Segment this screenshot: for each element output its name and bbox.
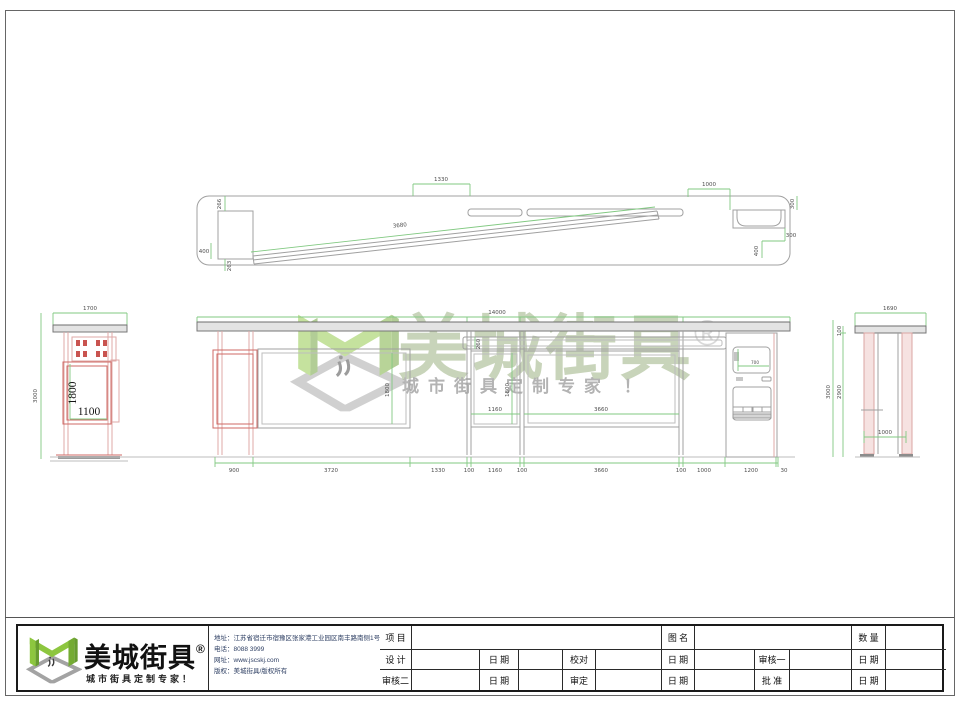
verify-value-cell [596, 670, 662, 690]
label-date: 日 期 [480, 650, 519, 670]
title-block: 美城街具® 城市街具定制专家！ 地址：江苏省宿迁市宿豫区张家港工业园区南丰路南侧… [16, 624, 944, 692]
label-approve: 批 准 [755, 670, 790, 690]
company-brand: 美城街具® [84, 636, 206, 675]
approval-table: 项 目 图 名 数 量 设 计 日 期 校对 日 期 审核一 日 期 审核二 日… [380, 626, 946, 690]
label-verify: 审定 [563, 670, 596, 690]
company-address: 地址：江苏省宿迁市宿豫区张家港工业园区南丰路南侧1号 [214, 633, 376, 644]
label-review2: 审核二 [380, 670, 412, 690]
date-value-cell [886, 670, 946, 690]
label-proofread: 校对 [563, 650, 596, 670]
quantity-value-cell [886, 626, 946, 650]
review1-value-cell [790, 650, 852, 670]
label-date: 日 期 [662, 670, 695, 690]
proofread-value-cell [596, 650, 662, 670]
project-value-cell [412, 626, 662, 650]
label-review1: 审核一 [755, 650, 790, 670]
company-phone: 电话：8088 3999 [214, 644, 376, 655]
label-quantity: 数 量 [852, 626, 886, 650]
company-m-logo-icon [24, 629, 82, 687]
company-tagline: 城市街具定制专家！ [86, 672, 194, 685]
sheet-border [5, 10, 955, 696]
registered-mark: ® [196, 642, 206, 656]
review2-value-cell [412, 670, 480, 690]
date-value-cell [886, 650, 946, 670]
drawing-sheet: 美城街具® 城市街具定制专家 ！ 1330 [0, 0, 960, 704]
date-value-cell [695, 670, 755, 690]
approve-value-cell [790, 670, 852, 690]
titleblock-top-rule [5, 617, 954, 618]
label-date: 日 期 [480, 670, 519, 690]
label-project: 项 目 [380, 626, 412, 650]
label-date: 日 期 [852, 670, 886, 690]
label-date: 日 期 [662, 650, 695, 670]
date-value-cell [519, 670, 563, 690]
label-design: 设 计 [380, 650, 412, 670]
label-drawing-name: 图 名 [662, 626, 695, 650]
drawing-name-value-cell [695, 626, 852, 650]
company-info: 地址：江苏省宿迁市宿豫区张家港工业园区南丰路南侧1号 电话：8088 3999 … [214, 633, 376, 677]
date-value-cell [519, 650, 563, 670]
divider [208, 626, 209, 690]
design-value-cell [412, 650, 480, 670]
company-copyright: 版权：美城街具/版权所有 [214, 666, 376, 677]
company-website: 网址：www.jscskj.com [214, 655, 376, 666]
date-value-cell [695, 650, 755, 670]
label-date: 日 期 [852, 650, 886, 670]
